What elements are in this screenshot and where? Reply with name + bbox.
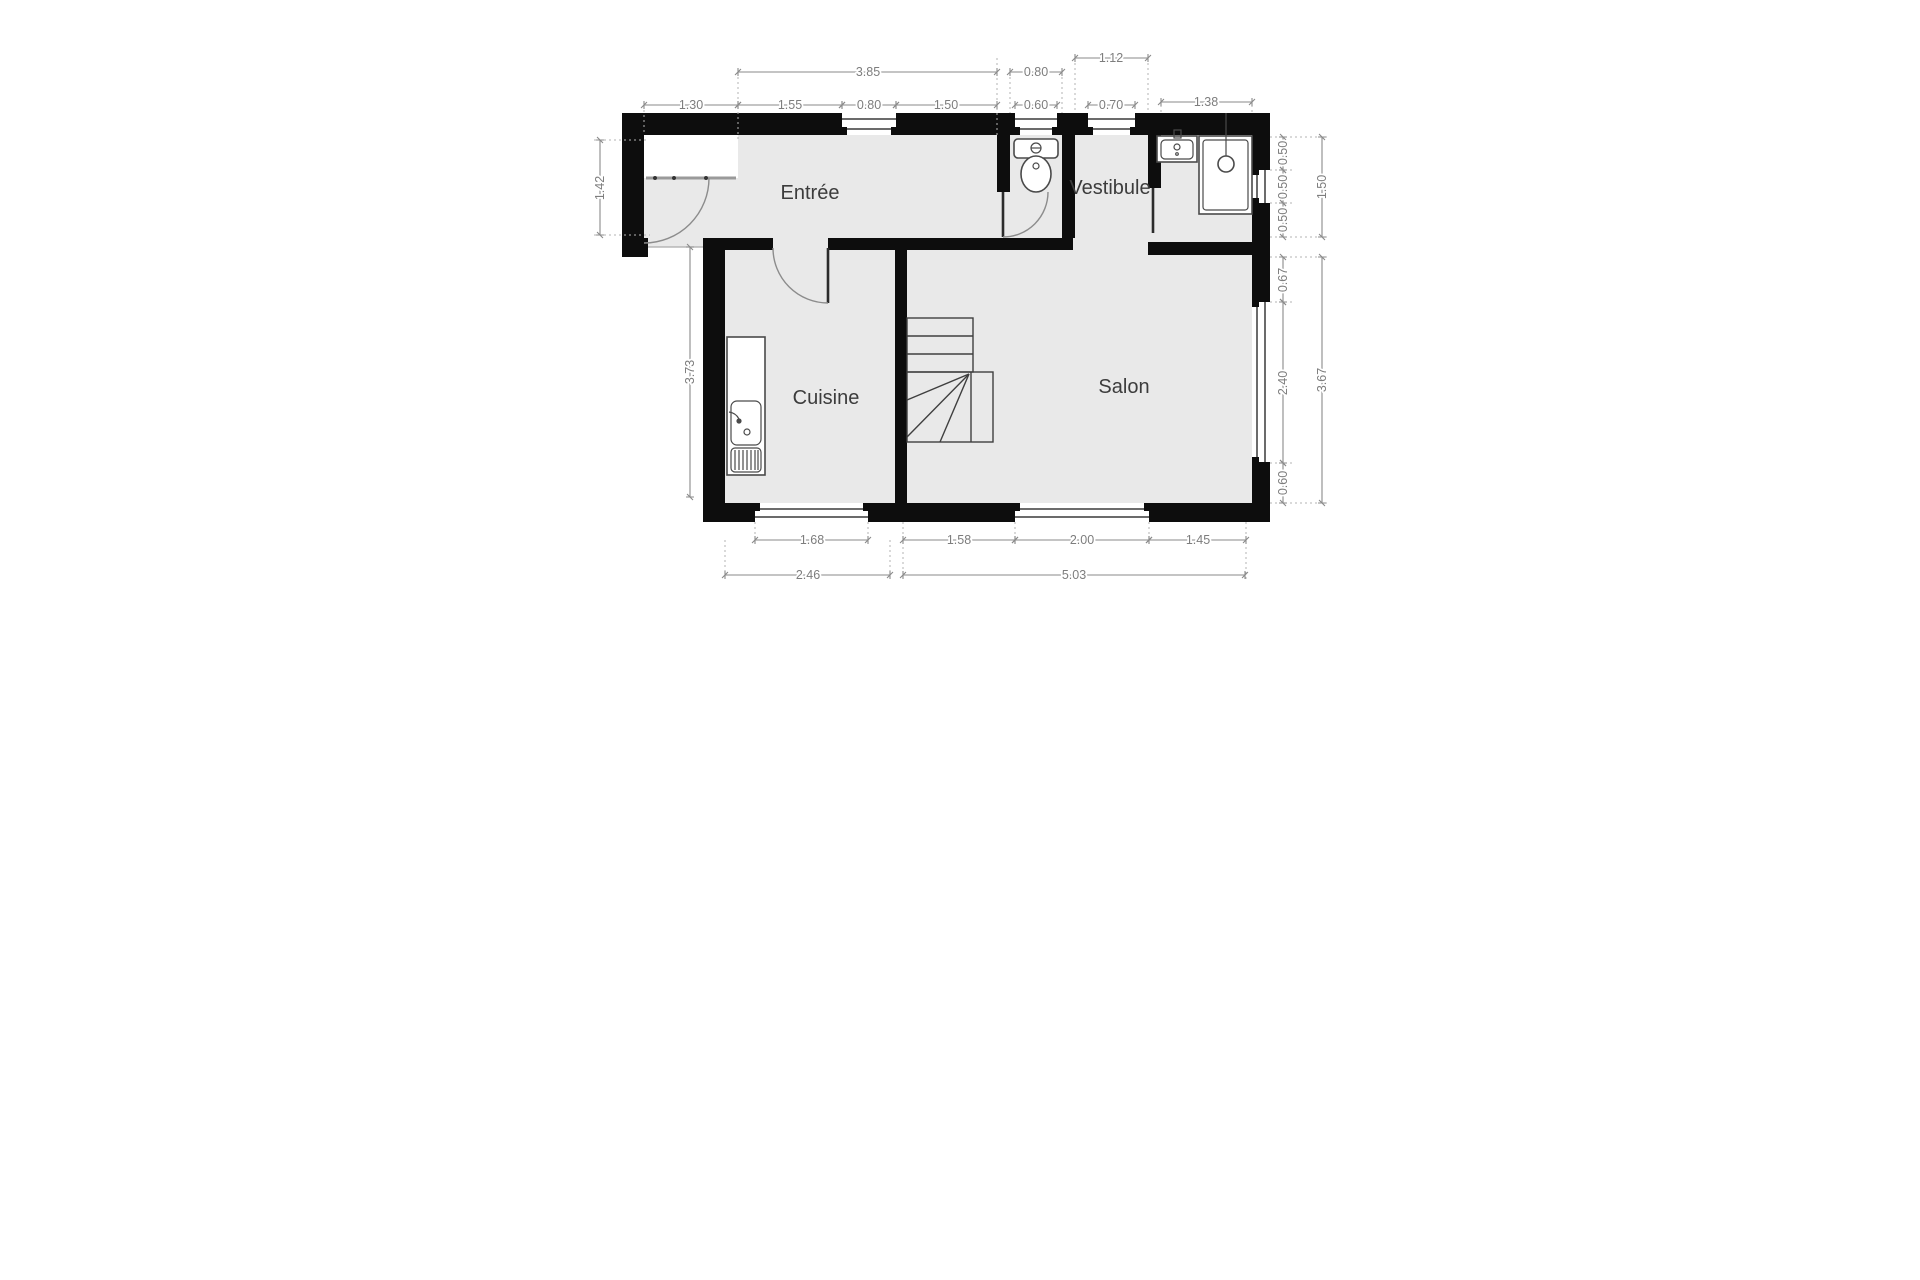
- window-wc-top: [1015, 113, 1057, 135]
- dimension-label: 1.58: [947, 533, 971, 547]
- dimension-label: 1.55: [778, 98, 802, 112]
- floor-plan-canvas: Entrée Vestibule Cuisine Salon: [0, 0, 1920, 1280]
- wall-wc-left: [997, 135, 1010, 192]
- room-salon-floor: [903, 238, 1270, 503]
- dimension-label: 1.12: [1099, 51, 1123, 65]
- window-salon-right: [1252, 302, 1270, 462]
- entry-niche: [644, 135, 738, 178]
- dimension-label: 1.42: [593, 176, 607, 200]
- dimension-label: 2.46: [796, 568, 820, 582]
- window-salon-bottom: [1015, 503, 1149, 522]
- wall-cuisine-salon-divider: [895, 250, 907, 522]
- window-bath-right: [1252, 170, 1270, 203]
- window-cuisine-bottom: [755, 503, 868, 522]
- window-vestibule-top: [1088, 113, 1135, 135]
- room-label-vestibule: Vestibule: [1069, 177, 1150, 199]
- dimension-label: 0.67: [1276, 268, 1290, 292]
- dimension-label: 1.50: [934, 98, 958, 112]
- dimension-label: 0.60: [1276, 471, 1290, 495]
- wall-right-b: [1252, 203, 1270, 302]
- wall-left-stub: [622, 238, 648, 257]
- dimension-label: 1.30: [679, 98, 703, 112]
- wall-right-a: [1252, 135, 1270, 170]
- dimension-label: 3.67: [1315, 368, 1329, 392]
- dimension-label: 1.38: [1194, 95, 1218, 109]
- room-label-salon: Salon: [1098, 376, 1149, 398]
- dimension-label: 0.80: [1024, 65, 1048, 79]
- dimension-label: 2.00: [1070, 533, 1094, 547]
- wall-top: [622, 113, 1270, 135]
- dimension-label: 0.80: [857, 98, 881, 112]
- dimension-label: 3.85: [856, 65, 880, 79]
- room-label-entree: Entrée: [781, 182, 840, 204]
- wall-cuisine-left: [703, 243, 725, 522]
- dimension-label: 0.70: [1099, 98, 1123, 112]
- dimension-label: 0.50: [1276, 141, 1290, 165]
- wall-bath-south: [1148, 242, 1270, 255]
- room-label-cuisine: Cuisine: [793, 387, 860, 409]
- exterior-notch: [648, 247, 703, 257]
- dimension-label: 5.03: [1062, 568, 1086, 582]
- wall-entree-south-b: [828, 238, 1073, 250]
- dimension-label: 1.68: [800, 533, 824, 547]
- dimension-label: 3.73: [683, 360, 697, 384]
- dimension-label: 1.45: [1186, 533, 1210, 547]
- dimension-label: 0.50: [1276, 175, 1290, 199]
- kitchen-sink: [727, 337, 765, 475]
- dimension-label: 1.50: [1315, 175, 1329, 199]
- dimension-label: 0.60: [1024, 98, 1048, 112]
- dimension-label: 0.50: [1276, 208, 1290, 232]
- dimension-label: 2.40: [1276, 371, 1290, 395]
- window-entree-top: [842, 113, 896, 135]
